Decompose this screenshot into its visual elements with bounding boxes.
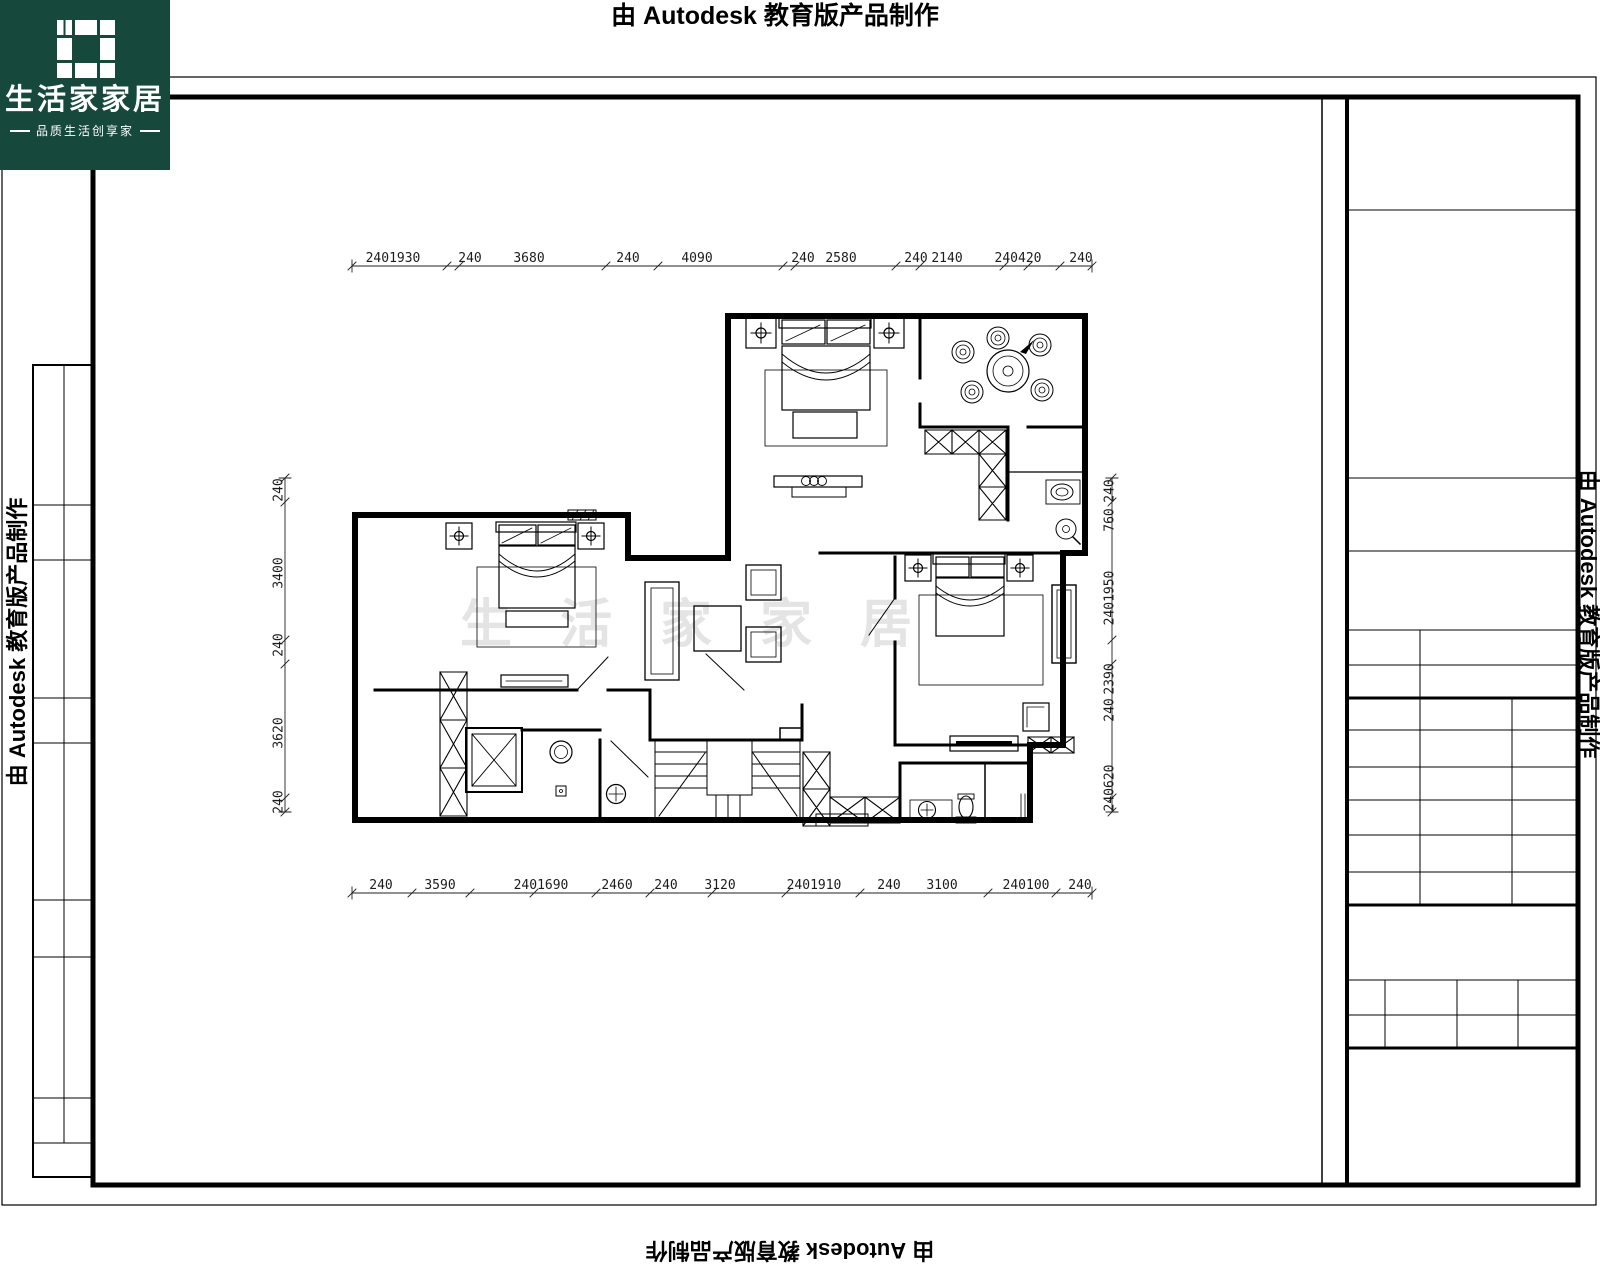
left-table — [33, 365, 93, 1177]
dim-label: 240 — [877, 878, 900, 893]
dim-label: 2401690 — [514, 878, 569, 893]
bedroom3-furniture — [905, 554, 1076, 751]
dim-label: 3100 — [926, 878, 957, 893]
washing-machine — [550, 741, 572, 763]
plant — [952, 341, 974, 363]
bed — [782, 346, 870, 410]
dimensions-bottom: 2403590240169024602403120240191024031002… — [0, 873, 1600, 893]
closet-hatch — [440, 430, 1074, 826]
dim-label: 2580 — [825, 251, 856, 266]
dimension-lines — [279, 260, 1118, 899]
elevator-shaft — [466, 728, 522, 792]
dim-label: 240 — [1103, 698, 1118, 721]
drawing-canvas — [0, 0, 1600, 1280]
bathroom1-fixtures — [1046, 480, 1080, 544]
dim-label: 240100 — [1003, 878, 1050, 893]
dim-label: 240 — [654, 878, 677, 893]
rug — [765, 370, 887, 446]
exterior-walls — [355, 316, 1085, 826]
brand-logo: 生活家家居 品质生活创享家 — [0, 0, 170, 170]
plant — [1029, 334, 1051, 356]
bedroom1-furniture — [746, 316, 904, 497]
bed-bench — [506, 611, 568, 627]
pillow — [827, 320, 870, 344]
dash-icon — [10, 130, 30, 132]
dim-label: 240 — [904, 251, 927, 266]
dimensions-left: 24034002403620240 — [279, 0, 299, 1280]
rug — [477, 567, 596, 647]
pillow — [782, 320, 825, 344]
pillow — [936, 557, 969, 577]
pillow — [971, 557, 1004, 577]
dim-label: 2401950 — [1103, 571, 1118, 626]
plant — [961, 381, 983, 403]
dim-label: 2390 — [1103, 663, 1118, 694]
door-leaves — [577, 598, 895, 777]
dim-label: 240 — [1069, 251, 1092, 266]
brand-logo-title: 生活家家居 — [0, 84, 170, 116]
bedroom2-furniture — [446, 522, 604, 687]
dim-label: 4090 — [681, 251, 712, 266]
dim-label: 240 — [369, 878, 392, 893]
living-room-furniture — [645, 565, 781, 680]
coffee-table — [694, 606, 741, 651]
dim-label: 240 — [1103, 479, 1118, 502]
dim-label: 240 — [1068, 878, 1091, 893]
utility-fixtures — [550, 741, 626, 804]
dash-icon — [140, 130, 160, 132]
dimensions-top: 2401930240368024040902402580240214024042… — [0, 246, 1600, 266]
watermark-right: 由 Autodesk 教育版产品制作 — [1574, 444, 1600, 784]
bed-bench — [793, 412, 857, 438]
dim-label: 3120 — [704, 878, 735, 893]
dimensions-right: 24076024019502390240240620 — [1110, 0, 1130, 1280]
drawing-sheet: 生活家家居 — [0, 0, 1600, 1280]
dim-label: 2460 — [601, 878, 632, 893]
dim-label: 3680 — [513, 251, 544, 266]
dim-label: 240 — [791, 251, 814, 266]
dim-label: 240 — [272, 478, 287, 501]
dim-label: 240 — [272, 633, 287, 656]
dim-label: 2401910 — [787, 878, 842, 893]
dim-label: 3620 — [272, 717, 287, 748]
dim-label: 3400 — [272, 557, 287, 588]
watermark-top: 由 Autodesk 教育版产品制作 — [585, 2, 965, 30]
dim-label: 240420 — [995, 251, 1042, 266]
staircase — [655, 740, 800, 820]
plant — [1031, 379, 1053, 401]
dim-label: 240 — [272, 790, 287, 813]
brand-logo-subtitle: 品质生活创享家 — [0, 122, 170, 139]
rug — [919, 595, 1043, 685]
brand-logo-icon — [57, 20, 113, 76]
bed — [936, 578, 1004, 636]
sofa — [645, 582, 679, 680]
dining-set — [952, 327, 1053, 403]
dim-label: 760 — [1103, 508, 1118, 531]
watermark-bottom: 由 Autodesk 教育版产品制作 — [620, 1236, 960, 1264]
dim-label: 2140 — [931, 251, 962, 266]
plant — [987, 327, 1009, 349]
dresser — [774, 476, 862, 487]
title-block — [1347, 210, 1578, 1048]
dim-label: 2401930 — [366, 251, 421, 266]
dim-label: 240 — [616, 251, 639, 266]
dim-label: 240 — [458, 251, 481, 266]
watermark-left: 由 Autodesk 教育版产品制作 — [4, 472, 32, 812]
dim-label: 3590 — [424, 878, 455, 893]
dim-label: 240620 — [1103, 765, 1118, 812]
